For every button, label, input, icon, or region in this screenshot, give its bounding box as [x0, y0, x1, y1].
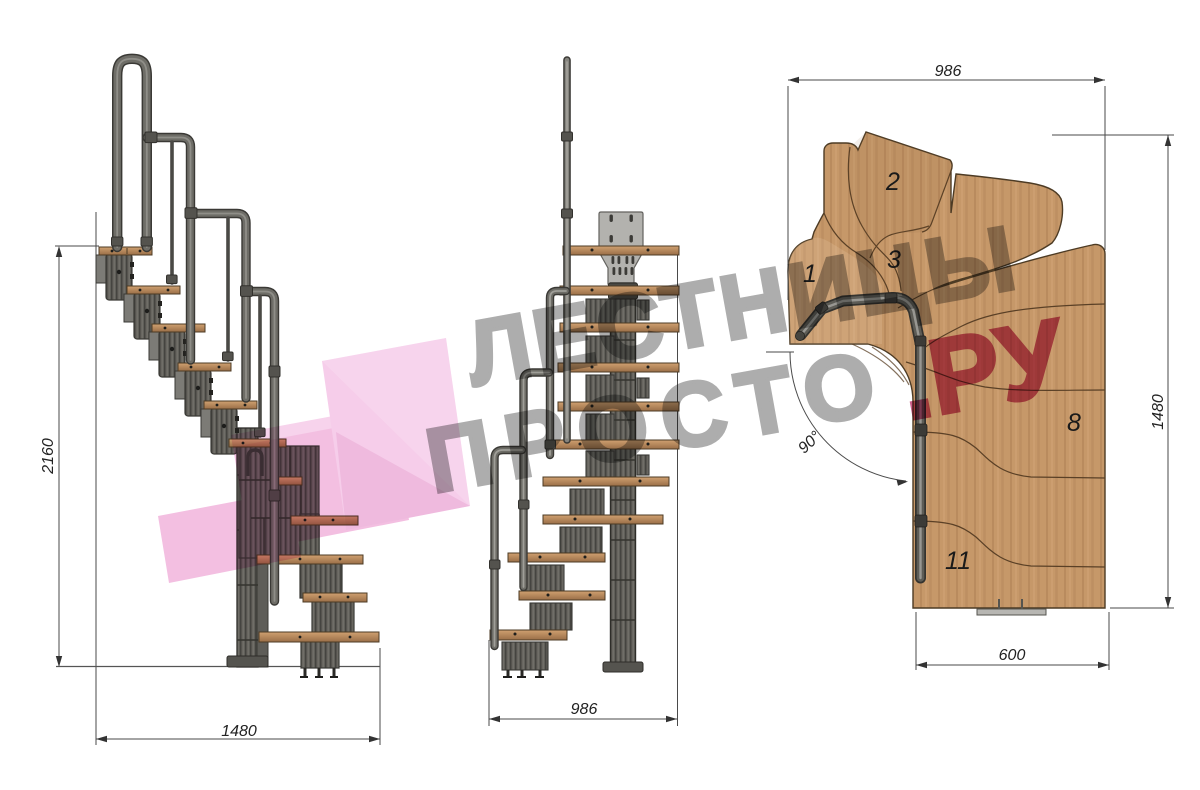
svg-text:600: 600: [999, 647, 1026, 664]
svg-text:1480: 1480: [221, 723, 257, 740]
svg-text:2: 2: [885, 168, 900, 196]
svg-text:11: 11: [945, 547, 971, 575]
svg-text:986: 986: [571, 701, 598, 718]
svg-text:1480: 1480: [1150, 394, 1167, 430]
svg-text:986: 986: [935, 63, 962, 80]
svg-text:2160: 2160: [40, 438, 57, 475]
